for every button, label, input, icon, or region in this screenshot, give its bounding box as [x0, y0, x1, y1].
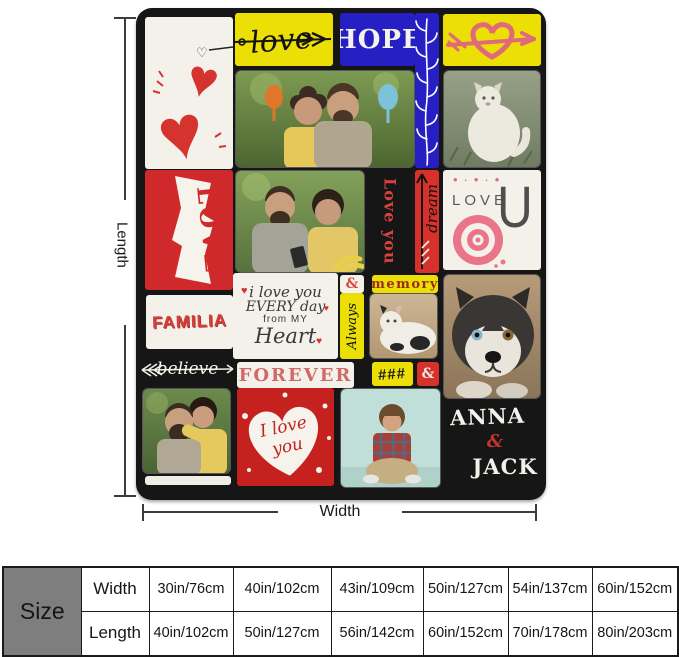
memory-tile: memory: [372, 275, 438, 293]
love-u-tile: •·•·• LOVE U: [443, 170, 541, 270]
hearts-tile: ♡ ♥ ♥: [145, 17, 233, 169]
product-image: ♡ ♥ ♥ love HOPE: [0, 0, 679, 657]
white-strip-tile: [145, 476, 231, 485]
always-label: Always: [345, 303, 360, 349]
ily-line2: EVERY day: [246, 300, 326, 315]
svg-text:love: love: [249, 21, 314, 61]
red-hearts-icon: ♡ ♥ ♥: [145, 17, 233, 169]
forever-tile: FOREVER: [237, 362, 354, 388]
love-you-label: Love you: [381, 178, 400, 265]
rose-icon: [447, 212, 509, 268]
dream-label: dream: [423, 184, 439, 233]
love-script-tile: love: [235, 13, 333, 66]
width-label-wrap: Width: [296, 500, 384, 524]
width-value-cell: 54in/137cm: [508, 567, 592, 611]
length-value-cell: 40in/102cm: [149, 611, 233, 656]
length-value-cell: 70in/178cm: [508, 611, 592, 656]
ribbon-banner-icon: LOVE: [145, 170, 233, 290]
familia-tile: FAMILIA: [146, 295, 233, 349]
width-value-cell: 43in/109cm: [331, 567, 423, 611]
branch-strip-tile: [415, 13, 439, 168]
length-line-bottom-cap: [114, 495, 136, 497]
heart-arrow-icon: [443, 14, 541, 66]
white-cat-photo: [443, 70, 541, 168]
husky-dog-photo: [443, 274, 541, 399]
heart-accent-icon: ♥: [324, 303, 329, 313]
familia-label: FAMILIA: [152, 311, 228, 334]
length-value-cell: 50in/127cm: [233, 611, 331, 656]
photo-blanket: ♡ ♥ ♥ love HOPE: [136, 8, 546, 500]
length-label-wrap: Length: [110, 203, 134, 287]
hope-label: HOPE: [340, 25, 415, 55]
i-love-you-heart-tile: I love you: [237, 388, 334, 486]
ily-line1: i love you: [249, 285, 322, 301]
memory-label: memory: [372, 277, 438, 292]
width-value-cell: 60in/152cm: [592, 567, 678, 611]
love-you-strip: Love you: [367, 170, 413, 273]
width-label: Width: [320, 503, 361, 521]
ampersand-red-tile: &: [417, 362, 439, 386]
heart-accent-icon: ♥: [316, 336, 322, 347]
length-value-cell: 60in/152cm: [423, 611, 508, 656]
width-line-right-segment: [402, 511, 536, 513]
width-line-right-cap: [535, 504, 537, 521]
length-value-cell: 56in/142cm: [331, 611, 423, 656]
length-value-cell: 80in/203cm: [592, 611, 678, 656]
width-value-cell: 40in/102cm: [233, 567, 331, 611]
size-corner-cell: Size: [3, 567, 81, 656]
heart-accent-icon: ♥: [241, 285, 248, 297]
hugging-couple-photo: [142, 388, 231, 474]
width-value-cell: 50in/127cm: [423, 567, 508, 611]
lying-cat-photo: [369, 293, 438, 359]
always-strip: Always: [340, 293, 364, 359]
hope-tile: HOPE: [340, 13, 415, 66]
size-chart-table: Size Width 30in/76cm 40in/102cm 43in/109…: [2, 566, 679, 657]
ily-line4: Heart: [255, 325, 317, 347]
branch-icon: [415, 13, 439, 168]
width-row-header: Width: [81, 567, 149, 611]
length-line-bottom-segment: [124, 325, 126, 496]
forever-label: FOREVER: [239, 365, 353, 386]
length-label: Length: [114, 222, 131, 268]
names-panel: ANNA & JACK: [445, 393, 541, 489]
ampersand-label: &: [422, 366, 435, 382]
couple-with-phone-photo: [235, 170, 365, 273]
width-value-cell: 30in/76cm: [149, 567, 233, 611]
couple-toasting-photo: [235, 70, 415, 168]
i-love-you-day-tile: i love you EVERY day from MY Heart ♥ ♥ ♥: [233, 273, 338, 359]
heart-arrow-tile: [443, 14, 541, 66]
ampersand-white-tile: &: [340, 275, 364, 293]
love-arrow-icon: love: [235, 13, 333, 66]
name-top-label: ANNA: [449, 402, 525, 430]
sitting-boy-photo: [340, 388, 441, 488]
hash-label: ###: [378, 365, 407, 384]
width-line-left-segment: [144, 511, 278, 513]
names-ampersand-label: &: [487, 431, 503, 452]
hash-tile: ###: [372, 362, 413, 386]
length-row-header: Length: [81, 611, 149, 656]
love-ribbon-tile: LOVE: [145, 170, 233, 290]
name-bottom-label: JACK: [472, 454, 537, 479]
believe-label: believe: [157, 359, 219, 379]
dream-strip-tile: dream: [415, 170, 439, 273]
believe-strip: believe: [140, 353, 235, 385]
ampersand-label: &: [346, 276, 359, 292]
length-line-top-segment: [124, 17, 126, 200]
